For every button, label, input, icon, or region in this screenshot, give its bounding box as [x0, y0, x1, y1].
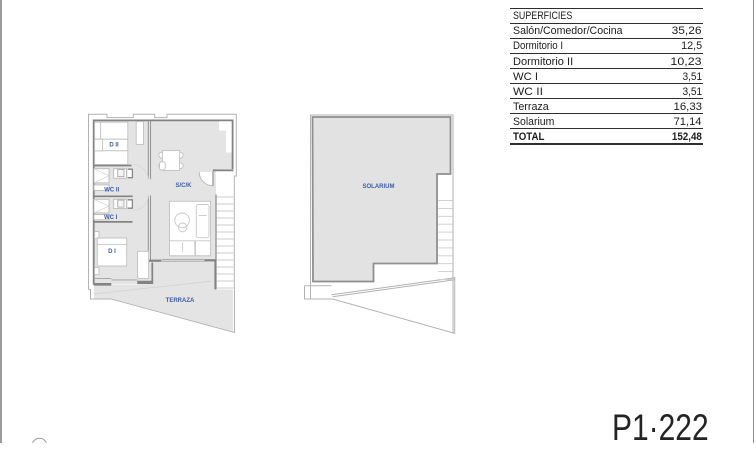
svg-text:TERRAZA: TERRAZA: [166, 298, 195, 304]
svg-text:S/C/K: S/C/K: [175, 183, 192, 189]
svg-text:WC II: WC II: [104, 187, 119, 193]
svg-text:WC I: WC I: [104, 215, 118, 221]
svg-text:D I: D I: [108, 249, 116, 255]
svg-text:D II: D II: [109, 142, 119, 148]
svg-text:SOLARIUM: SOLARIUM: [363, 184, 395, 190]
